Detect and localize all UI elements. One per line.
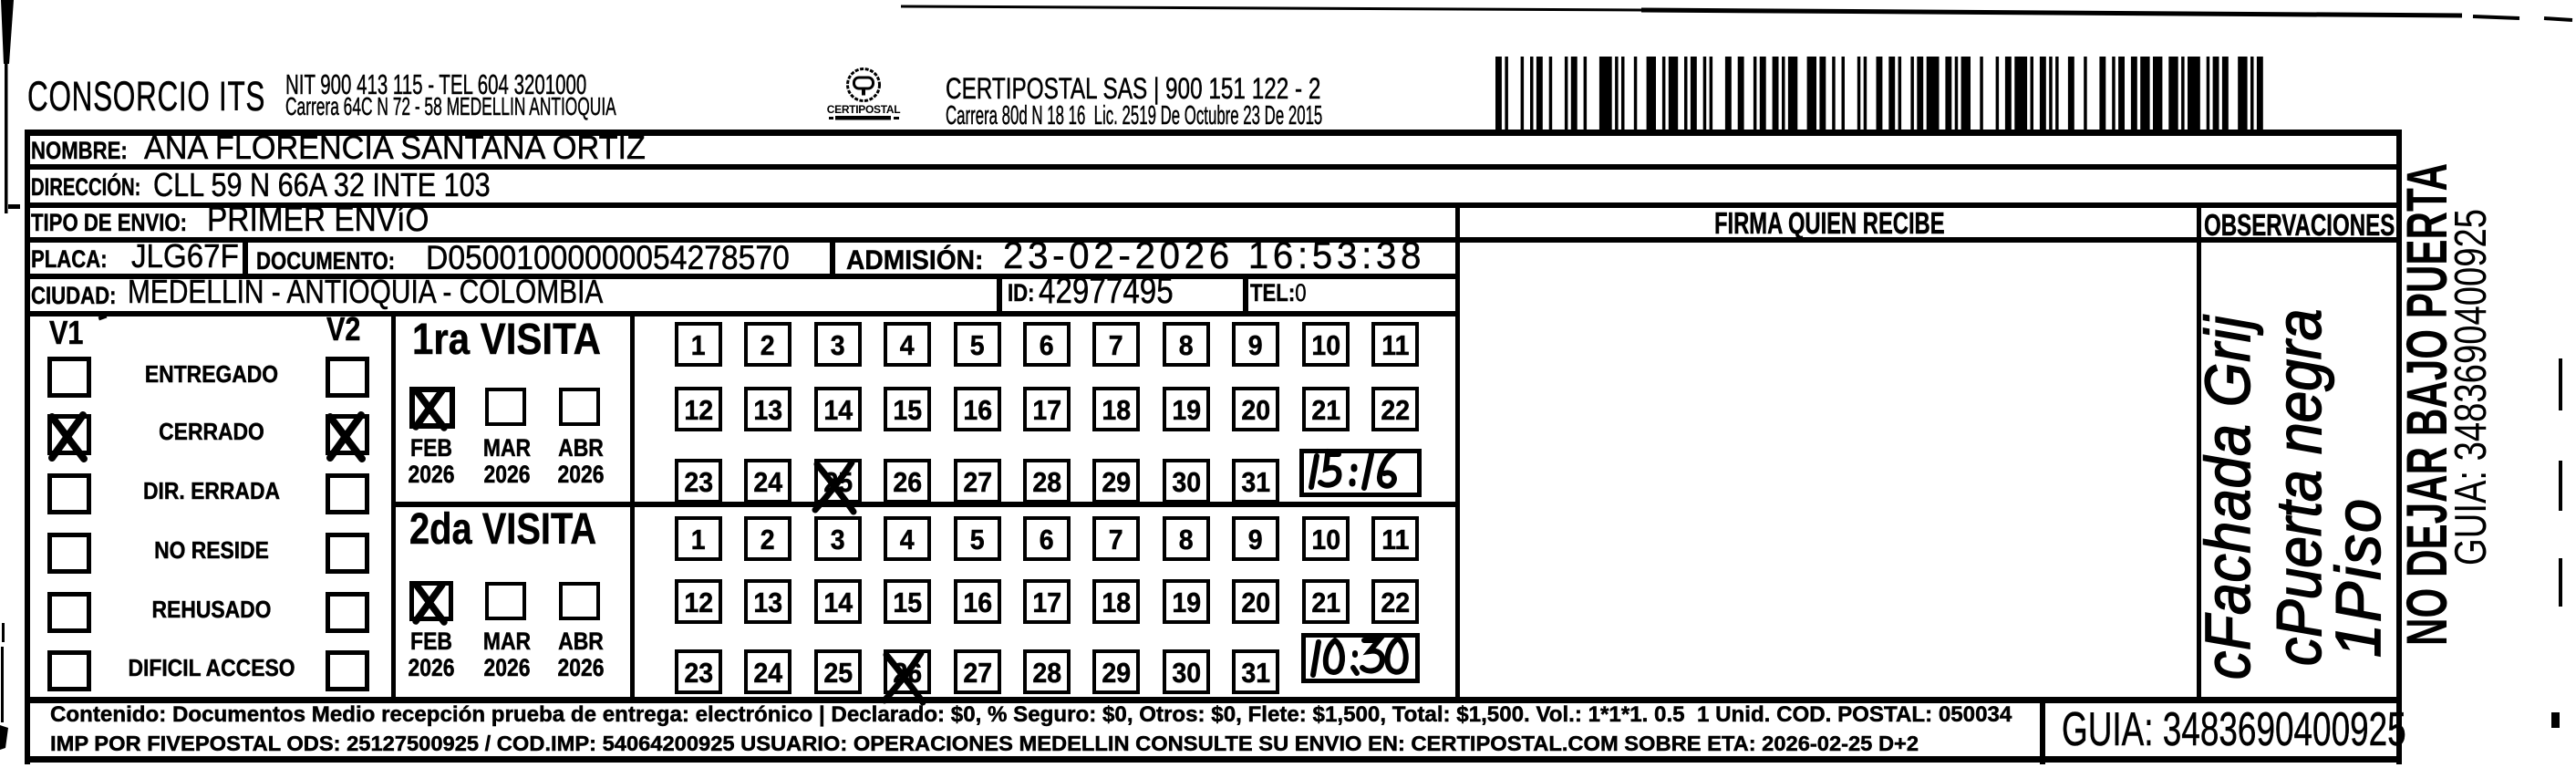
svg-text:GUIA: 3483690400925: GUIA: 3483690400925	[2447, 209, 2497, 566]
svg-text:1Piso: 1Piso	[2323, 497, 2394, 658]
